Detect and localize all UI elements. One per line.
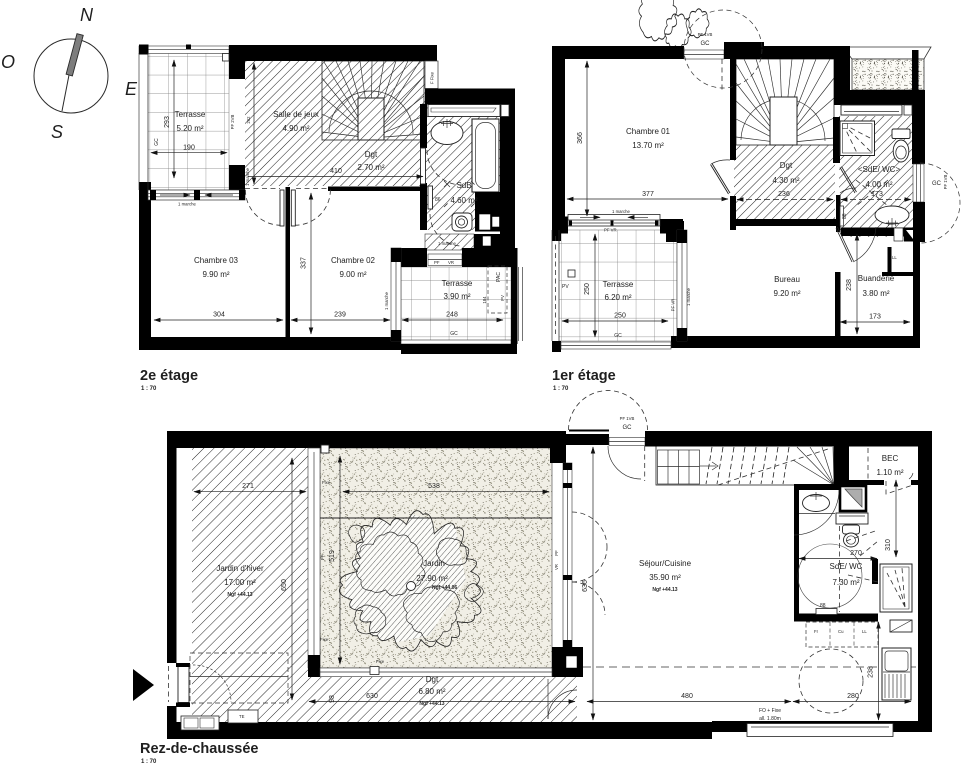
svg-text:4.00 m²: 4.00 m² — [865, 180, 892, 189]
svg-text:Ngf +44.06: Ngf +44.06 — [432, 585, 457, 591]
svg-text:1 : 70: 1 : 70 — [141, 386, 157, 392]
svg-text:Bureau: Bureau — [774, 275, 800, 284]
svg-text:Ngf +44.13: Ngf +44.13 — [419, 701, 444, 707]
svg-text:Séjour/Cuisine: Séjour/Cuisine — [639, 559, 692, 568]
svg-text:PF.: PF. — [320, 554, 325, 560]
svg-text:Dgt: Dgt — [365, 150, 378, 159]
svg-text:236: 236 — [778, 191, 790, 198]
svg-text:TE: TE — [239, 714, 245, 719]
svg-text:1 marche: 1 marche — [686, 287, 691, 306]
svg-text:Terrasse: Terrasse — [603, 280, 634, 289]
svg-text:366: 366 — [577, 132, 584, 144]
svg-text:Fixe: Fixe — [376, 659, 385, 664]
svg-text:Chambre 02: Chambre 02 — [331, 256, 376, 265]
svg-text:FO + Fixe: FO + Fixe — [759, 708, 781, 714]
svg-text:Chambre 01: Chambre 01 — [626, 127, 671, 136]
svg-text:1 marche: 1 marche — [438, 241, 457, 246]
svg-text:337: 337 — [301, 257, 308, 269]
svg-text:Salle de jeux: Salle de jeux — [273, 110, 319, 119]
svg-text:VR: VR — [554, 564, 559, 570]
svg-text:7.30 m²: 7.30 m² — [832, 578, 859, 587]
svg-text:248: 248 — [446, 312, 458, 319]
svg-text:N: N — [80, 5, 94, 25]
svg-text:1er étage: 1er étage — [552, 368, 616, 384]
svg-text:PF 1VB: PF 1VB — [698, 32, 713, 37]
svg-text:PF VR: PF VR — [671, 299, 676, 312]
svg-text:650: 650 — [281, 579, 288, 591]
svg-text:250: 250 — [584, 283, 591, 295]
svg-text:PV: PV — [562, 284, 569, 290]
svg-text:PF VR: PF VR — [604, 228, 617, 233]
svg-text:304: 304 — [213, 312, 225, 319]
svg-text:2.70 m²: 2.70 m² — [357, 163, 384, 172]
svg-text:6.20 m²: 6.20 m² — [604, 293, 631, 302]
svg-text:280: 280 — [847, 693, 859, 700]
svg-text:184: 184 — [482, 296, 487, 304]
svg-text:Ngf +44.13: Ngf +44.13 — [227, 592, 252, 598]
svg-text:Buanderie: Buanderie — [858, 274, 895, 283]
svg-text:Dgt: Dgt — [780, 161, 793, 170]
svg-text:PF 1VB: PF 1VB — [620, 416, 635, 421]
svg-text:PF 1VB: PF 1VB — [943, 174, 948, 189]
svg-text:3.90 m²: 3.90 m² — [443, 292, 470, 301]
svg-text:88: 88 — [842, 213, 848, 219]
svg-text:538: 538 — [428, 483, 440, 490]
svg-text:9.90 m²: 9.90 m² — [202, 270, 229, 279]
svg-text:270: 270 — [850, 550, 862, 557]
svg-text:E: E — [125, 79, 138, 99]
svg-text:1 marche: 1 marche — [384, 291, 389, 310]
svg-text:86: 86 — [435, 197, 441, 203]
svg-text:SdE/ WC: SdE/ WC — [830, 562, 863, 571]
svg-text:SdB: SdB — [456, 181, 471, 190]
svg-text:190: 190 — [183, 145, 195, 152]
svg-text:Cu: Cu — [838, 629, 844, 634]
svg-text:GC: GC — [450, 331, 458, 337]
svg-text:GC: GC — [701, 41, 711, 47]
svg-text:88: 88 — [820, 603, 826, 609]
svg-text:377: 377 — [642, 191, 654, 198]
svg-text:GC: GC — [623, 425, 633, 431]
svg-text:1 marche: 1 marche — [178, 202, 197, 207]
svg-text:410: 410 — [330, 168, 342, 175]
svg-text:1 : 70: 1 : 70 — [553, 386, 569, 392]
svg-text:O: O — [1, 52, 15, 72]
svg-text:Jardin d'hiver: Jardin d'hiver — [216, 564, 264, 573]
svg-text:238: 238 — [846, 279, 853, 291]
svg-text:4.60 m²: 4.60 m² — [450, 196, 477, 205]
svg-text:239: 239 — [334, 312, 346, 319]
svg-text:PV: PV — [500, 295, 505, 301]
svg-text:Chambre 03: Chambre 03 — [194, 256, 239, 265]
svg-text:Jardin: Jardin — [423, 559, 445, 568]
svg-text:519: 519 — [329, 550, 336, 562]
svg-text:Ngf +44.13: Ngf +44.13 — [652, 587, 677, 593]
svg-text:630: 630 — [366, 693, 378, 700]
svg-text:Terrasse: Terrasse — [442, 279, 473, 288]
svg-text:480: 480 — [681, 693, 693, 700]
svg-text:3.80 m²: 3.80 m² — [862, 289, 889, 298]
svg-text:1 : 70: 1 : 70 — [141, 759, 157, 765]
svg-text:BEC: BEC — [882, 454, 899, 463]
svg-text:Fixe: Fixe — [320, 637, 329, 642]
svg-text:271: 271 — [242, 483, 254, 490]
svg-text:GC: GC — [932, 181, 942, 187]
svg-text:9.20 m²: 9.20 m² — [773, 289, 800, 298]
svg-text:636: 636 — [582, 580, 589, 592]
svg-text:4.30 m²: 4.30 m² — [772, 176, 799, 185]
svg-text:250: 250 — [614, 313, 626, 320]
svg-text:27.90 m²: 27.90 m² — [416, 574, 448, 583]
svg-text:all. 1.80m: all. 1.80m — [759, 716, 781, 722]
svg-text:1 marche: 1 marche — [245, 167, 250, 186]
svg-text:238: 238 — [868, 666, 875, 678]
svg-text:Rez-de-chaussée: Rez-de-chaussée — [140, 741, 258, 757]
svg-text:310: 310 — [885, 539, 892, 551]
svg-text:GC: GC — [614, 333, 622, 339]
svg-text:F Fixe: F Fixe — [430, 71, 435, 84]
svg-text:LL: LL — [892, 255, 897, 260]
svg-text:1 marche: 1 marche — [612, 209, 631, 214]
svg-text:17.00 m²: 17.00 m² — [224, 578, 256, 587]
svg-text:S: S — [51, 122, 63, 142]
svg-text:PF: PF — [554, 550, 559, 556]
svg-text:˂SdE/ WC˃: ˂SdE/ WC˃ — [858, 165, 901, 174]
svg-text:5.20 m²: 5.20 m² — [176, 124, 203, 133]
svg-text:173: 173 — [871, 191, 883, 198]
svg-text:Fr: Fr — [814, 629, 819, 634]
svg-text:293: 293 — [164, 116, 171, 128]
svg-text:173: 173 — [869, 314, 881, 321]
svg-text:9.00 m²: 9.00 m² — [339, 270, 366, 279]
svg-text:6.80 m²: 6.80 m² — [418, 687, 445, 696]
svg-text:4.90 m²: 4.90 m² — [282, 124, 309, 133]
svg-text:292: 292 — [246, 116, 251, 124]
svg-text:1.10 m²: 1.10 m² — [876, 468, 903, 477]
svg-text:Terrasse: Terrasse — [175, 110, 206, 119]
svg-text:2e étage: 2e étage — [140, 368, 198, 384]
svg-text:PAC: PAC — [496, 272, 502, 282]
svg-text:PF 2VB: PF 2VB — [230, 114, 235, 129]
svg-text:35.90 m²: 35.90 m² — [649, 573, 681, 582]
svg-text:GC: GC — [154, 138, 160, 146]
svg-text:VR: VR — [448, 260, 454, 265]
svg-text:98: 98 — [329, 695, 336, 703]
svg-text:13.70 m²: 13.70 m² — [632, 141, 664, 150]
svg-text:LL: LL — [862, 629, 867, 634]
svg-text:Dgt: Dgt — [426, 675, 439, 684]
svg-text:Fixe: Fixe — [322, 480, 331, 485]
svg-text:PF: PF — [434, 260, 440, 265]
